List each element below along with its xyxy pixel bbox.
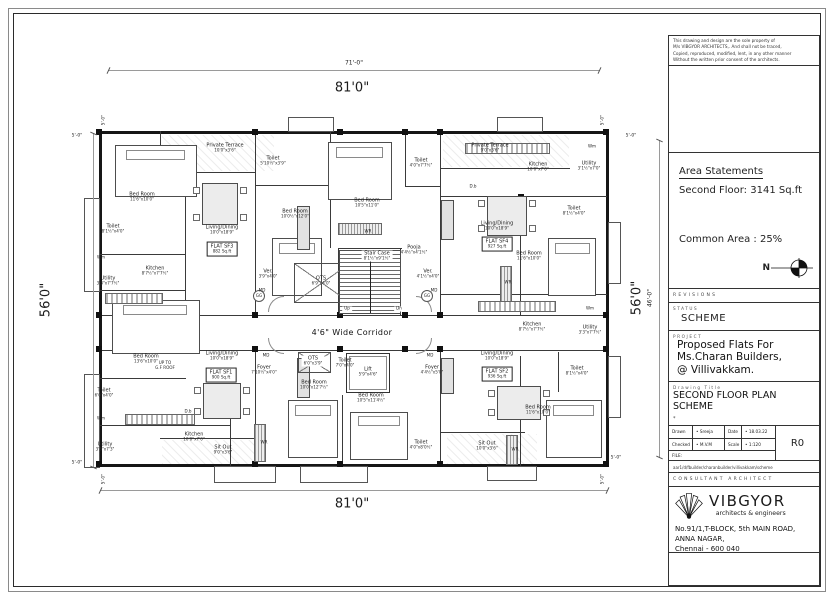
chair-symbol xyxy=(243,408,250,415)
column xyxy=(96,461,102,467)
bed-symbol xyxy=(548,238,596,296)
interior-wall xyxy=(558,352,559,392)
wall-projection xyxy=(300,466,368,483)
strip-symbol xyxy=(338,223,382,235)
room-label: Bed Room11'6"x10'0" xyxy=(129,192,155,203)
revisions-header: REVISIONS xyxy=(669,289,819,303)
room-label: Wm xyxy=(588,145,596,150)
arc-symbol xyxy=(268,296,284,312)
room-label: D.b xyxy=(469,185,476,190)
project-section: PROJECT Proposed Flats For Ms.Charan Bui… xyxy=(669,331,819,382)
room-label: WR xyxy=(261,441,268,446)
column xyxy=(337,346,343,352)
drawn-label: Drawn xyxy=(669,426,693,438)
interior-wall xyxy=(99,378,186,379)
room-label: Toilet7'0"x4'0" xyxy=(336,358,355,369)
room-label: Bed Room10'5"x11'4½" xyxy=(357,393,385,404)
chair-symbol xyxy=(240,187,247,194)
table-row: Drawn Sreeja Date 18.03.22 xyxy=(669,426,775,439)
chair-symbol xyxy=(243,387,250,394)
room-label: 4'6" Wide Corridor xyxy=(312,328,393,338)
chair-symbol xyxy=(478,200,485,207)
vibgyor-logo-icon xyxy=(673,491,705,521)
room-label: Utility3'3"x7'3" xyxy=(96,442,115,453)
room-label: OTS6'9"x4'0" xyxy=(312,276,331,287)
room-label: Bed Room10'0"x12'7½" xyxy=(300,380,328,391)
dimension-label: 5'-0" xyxy=(72,461,83,466)
dimension-label: 56'0" xyxy=(39,283,54,317)
room-label: WR xyxy=(505,281,512,286)
chair-symbol xyxy=(240,214,247,221)
room-label: Wm xyxy=(586,307,594,312)
column xyxy=(96,346,102,352)
north-indicator: N xyxy=(762,256,813,280)
date-label: Date xyxy=(725,426,742,438)
title-block-filler xyxy=(669,553,819,587)
drawing-title-section: Drawing Title SECOND FLOOR PLAN SCHEME * xyxy=(669,382,819,426)
room-label: MD xyxy=(263,354,270,359)
room-label: Toilet5'10½"x3'9" xyxy=(260,156,285,167)
wall-projection xyxy=(608,222,621,284)
room-label: Living/Dining10'0"x18'9" xyxy=(481,351,514,362)
room-label: Living/Dining10'0"x18'9" xyxy=(481,221,514,232)
room-label: FLAT SF1900 Sq.ft xyxy=(206,368,237,383)
bed-symbol xyxy=(115,145,197,197)
room-label: Living/Dining10'0"x18'9" xyxy=(206,351,239,362)
interior-wall xyxy=(99,254,186,255)
room-label: Utility3'1½"x7'0" xyxy=(578,161,601,172)
column xyxy=(402,346,408,352)
column xyxy=(96,312,102,318)
room-label: Sit Out10'0"x3'6" xyxy=(476,441,497,452)
room-label: Bed Room11'6"x10'0" xyxy=(525,405,551,416)
dimension-label: 81'0" xyxy=(335,497,369,512)
bed-symbol xyxy=(328,142,392,200)
room-label: Utility3'3"x7'7½" xyxy=(97,276,120,287)
chair-symbol xyxy=(193,187,200,194)
dimension-label: 5'-0" xyxy=(102,115,107,126)
project-line: @ Villivakkam. xyxy=(677,364,815,376)
room-label: Kitchen10'0"x7'0" xyxy=(527,162,548,173)
chair-symbol xyxy=(543,390,550,397)
room-label: UP TOG.F ROOF xyxy=(155,361,175,371)
room-label: Pooja4'4½"x4'1½" xyxy=(401,245,428,256)
table-row: FILE: xyxy=(669,451,775,460)
dimension-label: 5'-0" xyxy=(102,474,107,485)
wall-projection xyxy=(214,466,276,483)
column xyxy=(603,461,609,467)
room-label: WR xyxy=(365,230,372,235)
file-path: aar1/d/fbuilder/charanbuilder/villivakka… xyxy=(669,461,819,473)
interior-wall xyxy=(255,185,331,186)
drawing-title-line: SECOND FLOOR PLAN xyxy=(673,390,815,401)
address-line: Chennai - 600 040 xyxy=(675,544,819,553)
column xyxy=(337,461,343,467)
room-label: MD xyxy=(427,354,434,359)
room-label: Dn xyxy=(394,307,404,312)
room-label: MD xyxy=(259,289,266,294)
column xyxy=(402,312,408,318)
column xyxy=(337,129,343,135)
dimension-line xyxy=(100,490,608,491)
dimension-label: 81'0" xyxy=(335,81,369,96)
column xyxy=(603,312,609,318)
dimension-label: 5'-0" xyxy=(601,474,606,485)
scale-value: 1:120 xyxy=(742,439,775,451)
room-label: Foyer4'4½"x5'0" xyxy=(421,365,444,376)
room-label: Bed Room10'0½"x12'0" xyxy=(281,209,309,220)
bed-symbol xyxy=(112,300,200,354)
counter-symbol xyxy=(125,414,195,425)
room-label: Toilet8'1½"x4'0" xyxy=(566,366,589,377)
room-label: Toilet4'0"x8'0½" xyxy=(410,440,433,451)
dimension-label: 5'-0" xyxy=(72,134,83,139)
column xyxy=(437,461,443,467)
room-label: FLAT SF3882 Sq.ft xyxy=(207,242,238,257)
column xyxy=(603,346,609,352)
counter-symbol xyxy=(478,301,556,312)
firm-name: VIBGYOR xyxy=(709,494,786,509)
room-label: MD xyxy=(431,289,438,294)
drawing-info-table: Drawn Sreeja Date 18.03.22 Checked M.V.M… xyxy=(669,426,819,461)
date-value: 18.03.22 xyxy=(742,426,775,438)
room-label: Toilet6'0"x4'0" xyxy=(95,388,114,399)
interior-wall xyxy=(405,131,406,187)
arc-symbol xyxy=(268,338,284,354)
file-label: FILE: xyxy=(669,451,775,460)
revision-notes-area xyxy=(669,66,819,153)
room-label: Living/Dining10'0"x18'9" xyxy=(206,225,239,236)
chair-symbol xyxy=(488,409,495,416)
room-label: Stair Case8'1½"x9'1½" xyxy=(362,251,393,262)
wall-projection xyxy=(608,356,621,418)
project-line: Ms.Charan Builders, xyxy=(677,351,815,363)
chair-symbol xyxy=(529,225,536,232)
second-floor-area: Second Floor: 3141 Sq.ft xyxy=(679,185,819,196)
copyright-disclaimer: This drawing and design are the sole pro… xyxy=(669,36,819,66)
room-label: Toilet8'1½"x4'0" xyxy=(102,224,125,235)
room-label: Bed Room10'5"x11'0" xyxy=(354,198,380,209)
room-label: Lift5'9"x4'6" xyxy=(357,367,380,378)
dimension-line xyxy=(659,140,660,458)
room-label: OTS6'0"x3'9" xyxy=(302,356,325,367)
column xyxy=(437,346,443,352)
room-label: D.b xyxy=(184,410,191,415)
column xyxy=(437,312,443,318)
consultant-architect-header: CONSULTANT ARCHITECT xyxy=(669,473,819,487)
bed-symbol xyxy=(288,400,338,458)
room-label: Wm xyxy=(97,417,105,422)
room-label: FLAT SF2936 Sq.ft xyxy=(482,367,513,382)
bed-symbol xyxy=(350,412,408,460)
room-label: Wm xyxy=(97,256,105,261)
dimension-line xyxy=(93,133,94,468)
drawing-sheet: { "title_block": { "disclaimer_lines": [… xyxy=(0,0,834,600)
chair-symbol xyxy=(193,214,200,221)
drawing-title-line: SCHEME xyxy=(673,401,815,412)
interior-wall xyxy=(99,425,230,426)
column xyxy=(252,346,258,352)
room-label: Kitchen10'0"x7'0" xyxy=(183,432,204,443)
table-symbol xyxy=(202,183,238,225)
room-label: Sit Out9'0"x3'6" xyxy=(214,445,233,456)
interior-wall xyxy=(440,168,570,169)
chair-symbol xyxy=(529,200,536,207)
scale-label: Scale xyxy=(725,439,742,451)
dimension-label: 71'-0" xyxy=(345,60,363,67)
firm-address: No.91/1,T-BLOCK, 5th MAIN ROAD, ANNA NAG… xyxy=(669,522,819,553)
interior-wall xyxy=(99,290,186,291)
room-label: Private Terrace10'0"x3'6" xyxy=(206,143,243,154)
room-label: Up xyxy=(342,307,352,312)
wall-projection xyxy=(487,466,537,481)
dimension-label: 5'-0" xyxy=(626,134,637,139)
checked-label: Checked xyxy=(669,439,693,451)
interior-wall xyxy=(405,186,441,187)
chair-symbol xyxy=(488,390,495,397)
sofa-symbol xyxy=(441,200,454,240)
wall-projection xyxy=(288,117,334,132)
dimension-label: 46'-0" xyxy=(647,289,654,307)
drawing-title-note: * xyxy=(673,416,815,422)
north-arrow-icon xyxy=(771,256,813,280)
interior-wall xyxy=(342,395,343,465)
disclaimer-line: Without the written prior consent of the… xyxy=(673,57,815,63)
sofa-symbol xyxy=(441,358,454,394)
hatch-symbol xyxy=(162,440,254,464)
chair-symbol xyxy=(194,387,201,394)
area-statements-heading: Area Statements xyxy=(679,166,763,179)
address-line: ANNA NAGAR, xyxy=(675,534,819,544)
column xyxy=(252,312,258,318)
room-label: WR xyxy=(512,448,519,453)
dimension-line xyxy=(108,70,600,71)
chair-symbol xyxy=(194,408,201,415)
table-row: Checked M.V.M Scale 1:120 xyxy=(669,439,775,452)
north-label: N xyxy=(762,263,770,273)
column xyxy=(603,129,609,135)
room-label: Toilet8'1½"x4'0" xyxy=(563,206,586,217)
status-label: STATUS xyxy=(673,306,815,311)
firm-name-block: VIBGYOR architects & engineers xyxy=(709,494,786,517)
status-value: SCHEME xyxy=(681,313,815,324)
firm-tagline: architects & engineers xyxy=(709,510,786,517)
dimension-label: 5'-0" xyxy=(601,115,606,126)
bed-symbol xyxy=(546,400,602,458)
room-label: Foyer7'10½"x4'0" xyxy=(251,365,276,376)
title-block: This drawing and design are the sole pro… xyxy=(668,35,820,586)
room-label: Kitchen8'7½"x7'7½" xyxy=(142,266,169,277)
room-label: Bed Room11'6"x10'0" xyxy=(516,251,542,262)
area-statements-section: Area Statements Second Floor: 3141 Sq.ft… xyxy=(669,153,819,289)
address-line: No.91/1,T-BLOCK, 5th MAIN ROAD, xyxy=(675,524,819,534)
revision-badge: R0 xyxy=(775,426,819,460)
drawing-info-rows: Drawn Sreeja Date 18.03.22 Checked M.V.M… xyxy=(669,426,775,460)
dimension-label: 56'0" xyxy=(630,281,645,315)
room-label: Toilet4'0"x7'7½" xyxy=(410,158,433,169)
room-label: Ver.4'1½"x4'0" xyxy=(417,269,440,280)
checked-value: M.V.M xyxy=(693,439,725,451)
common-area: Common Area : 25% xyxy=(679,234,819,245)
room-label: Utility3'3"x7'7½" xyxy=(579,325,602,336)
table-symbol xyxy=(203,383,241,419)
column xyxy=(402,129,408,135)
drawn-value: Sreeja xyxy=(693,426,725,438)
firm-identity: VIBGYOR architects & engineers xyxy=(669,487,819,522)
room-label: Private Terrace9'0"x3'6" xyxy=(471,143,508,154)
room-label: Kitchen8'7½"x7'7½" xyxy=(519,322,546,333)
dimension-label: 5'-0" xyxy=(611,456,622,461)
room-label: Ver.3'9"x4'0" xyxy=(259,269,278,280)
status-section: STATUS SCHEME xyxy=(669,303,819,331)
project-line: Proposed Flats For xyxy=(677,339,815,351)
wall-projection xyxy=(497,117,543,132)
room-label: FLAT SF4927 Sq.ft xyxy=(482,237,513,252)
counter-symbol xyxy=(105,293,163,304)
